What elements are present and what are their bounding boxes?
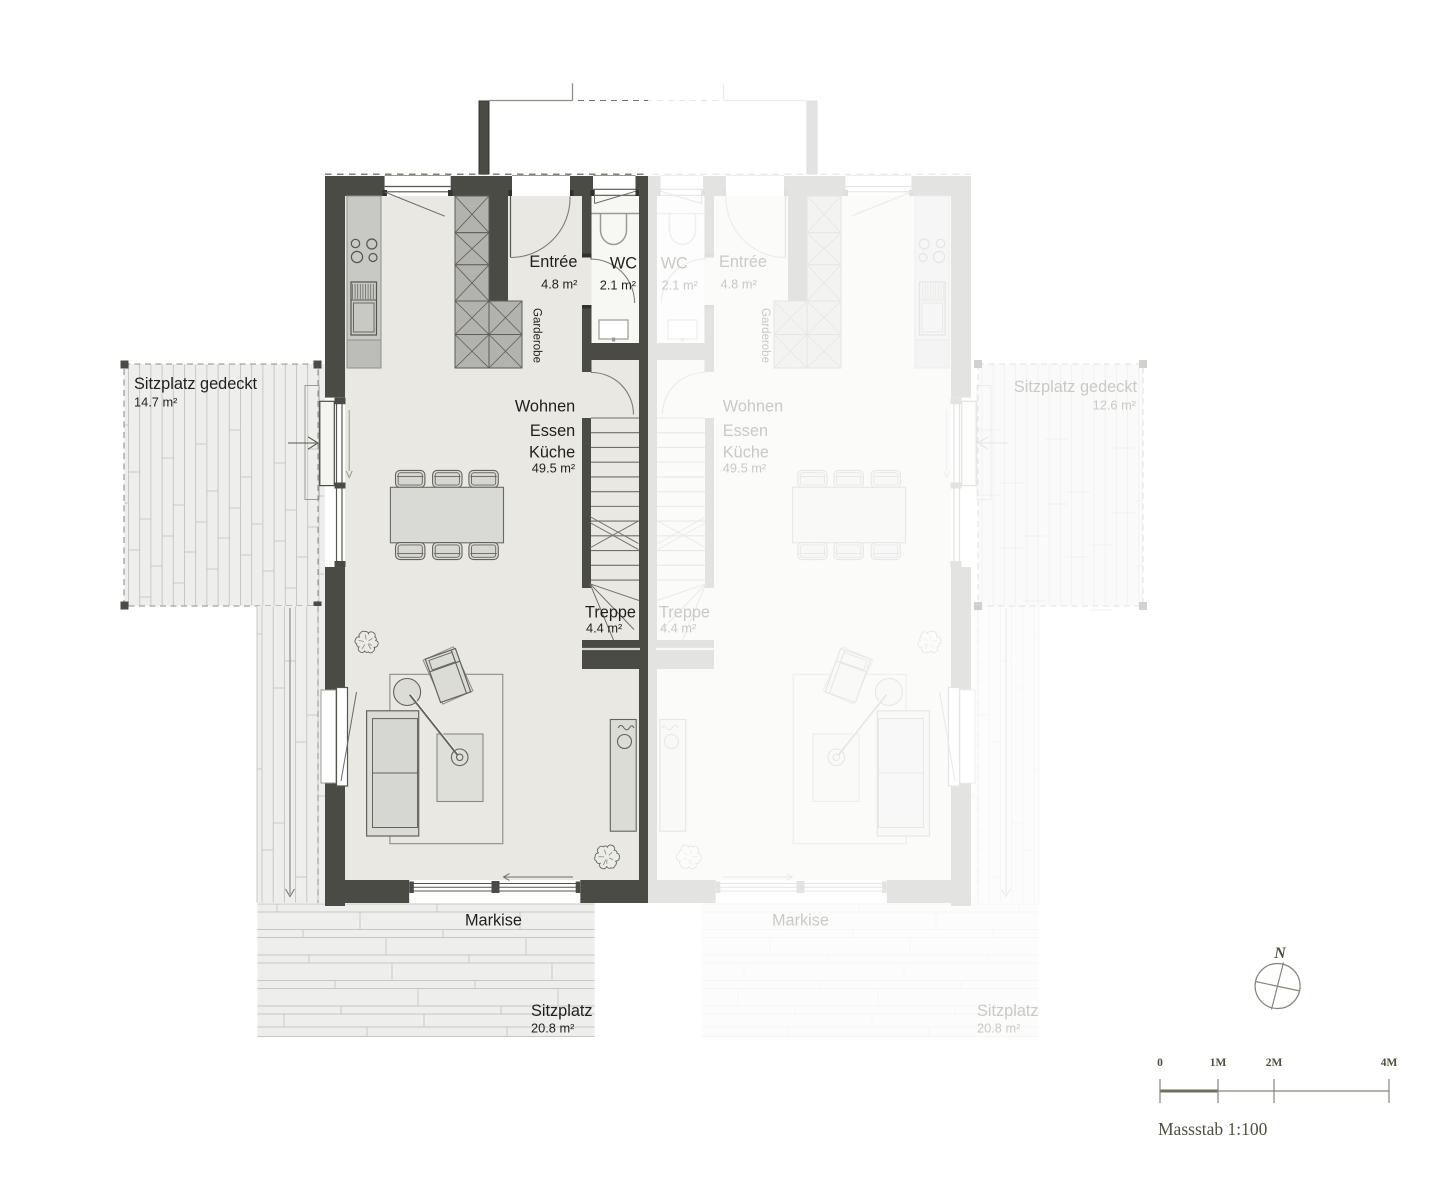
svg-text:Markise: Markise	[772, 912, 829, 930]
svg-text:1M: 1M	[1210, 1057, 1227, 1069]
svg-text:N: N	[1273, 945, 1287, 962]
svg-text:0: 0	[1157, 1057, 1163, 1069]
svg-text:12.6 m²: 12.6 m²	[1093, 398, 1137, 413]
svg-text:Treppe: Treppe	[659, 604, 710, 622]
svg-text:14.7 m²: 14.7 m²	[134, 395, 178, 410]
svg-text:Entrée: Entrée	[529, 253, 577, 271]
svg-text:20.8 m²: 20.8 m²	[977, 1021, 1021, 1036]
svg-text:Sitzplatz gedeckt: Sitzplatz gedeckt	[134, 375, 258, 393]
svg-text:2.1 m²: 2.1 m²	[600, 278, 637, 293]
svg-text:Wohnen: Wohnen	[515, 398, 575, 416]
svg-text:4.8 m²: 4.8 m²	[541, 277, 578, 292]
svg-text:2.1 m²: 2.1 m²	[662, 278, 699, 293]
svg-text:Küche: Küche	[529, 444, 575, 462]
svg-text:Sitzplatz: Sitzplatz	[531, 1002, 593, 1020]
svg-text:4.4 m²: 4.4 m²	[586, 621, 623, 636]
svg-text:2M: 2M	[1266, 1057, 1283, 1069]
svg-text:Markise: Markise	[465, 912, 522, 930]
svg-text:Garderobe: Garderobe	[759, 308, 771, 363]
svg-text:Entrée: Entrée	[719, 253, 767, 271]
svg-text:WC: WC	[661, 255, 688, 273]
svg-text:4.8 m²: 4.8 m²	[721, 277, 758, 292]
svg-text:4M: 4M	[1381, 1057, 1398, 1069]
svg-text:20.8 m²: 20.8 m²	[531, 1021, 575, 1036]
svg-text:Essen: Essen	[723, 422, 768, 440]
svg-text:Sitzplatz gedeckt: Sitzplatz gedeckt	[1014, 378, 1138, 396]
svg-text:Garderobe: Garderobe	[531, 308, 543, 363]
svg-text:WC: WC	[610, 255, 637, 273]
svg-text:Sitzplatz: Sitzplatz	[977, 1002, 1039, 1020]
svg-text:49.5 m²: 49.5 m²	[723, 461, 767, 476]
svg-text:49.5 m²: 49.5 m²	[532, 461, 576, 476]
svg-text:Massstab 1:100: Massstab 1:100	[1158, 1119, 1268, 1139]
svg-text:Wohnen: Wohnen	[723, 398, 783, 416]
svg-text:Essen: Essen	[530, 422, 575, 440]
svg-text:Treppe: Treppe	[585, 604, 636, 622]
svg-text:Küche: Küche	[723, 444, 769, 462]
svg-text:4.4 m²: 4.4 m²	[660, 621, 697, 636]
